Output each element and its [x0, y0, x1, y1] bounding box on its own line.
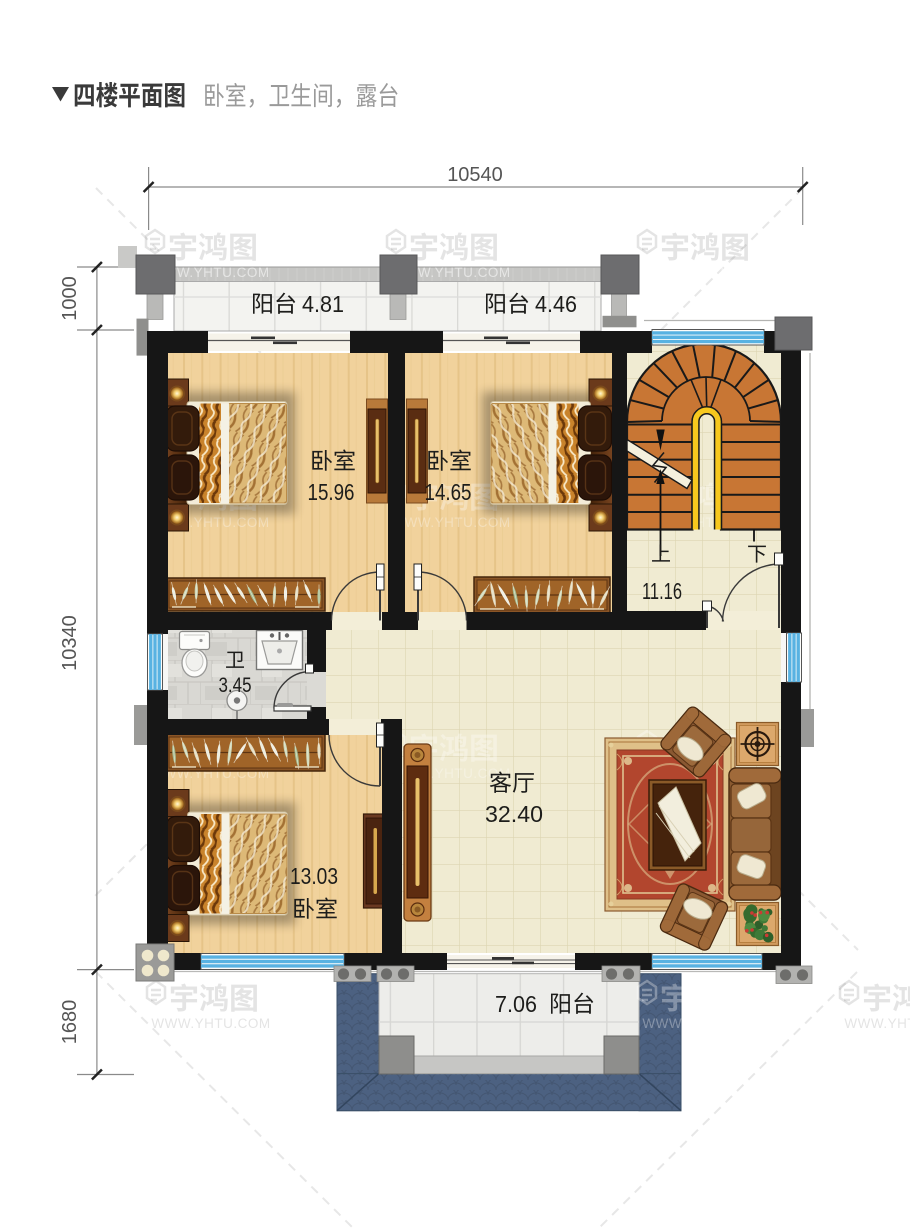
svg-text:WWW.YHTU.COM: WWW.YHTU.COM — [391, 515, 510, 530]
svg-text:15.96: 15.96 — [308, 479, 355, 505]
svg-text:1680: 1680 — [59, 1000, 81, 1045]
svg-text:WWW.YHTU.COM: WWW.YHTU.COM — [151, 1016, 270, 1031]
svg-text:4.46: 4.46 — [535, 291, 577, 317]
svg-text:13.03: 13.03 — [290, 863, 338, 889]
svg-text:1000: 1000 — [59, 276, 81, 321]
svg-text:7.06: 7.06 — [495, 991, 537, 1017]
svg-text:3.45: 3.45 — [219, 674, 252, 697]
svg-text:10540: 10540 — [447, 164, 503, 186]
svg-text:10340: 10340 — [59, 615, 81, 671]
svg-text:32.40: 32.40 — [485, 801, 543, 827]
svg-text:11.16: 11.16 — [642, 578, 682, 604]
svg-text:14.65: 14.65 — [425, 479, 472, 505]
svg-text:WWW.YHTU.COM: WWW.YHTU.COM — [844, 1016, 910, 1031]
svg-text:WWW.YHTU.COM: WWW.YHTU.COM — [642, 265, 761, 280]
svg-text:4.81: 4.81 — [302, 291, 344, 317]
svg-text:WWW.YHTU.COM: WWW.YHTU.COM — [642, 1016, 761, 1031]
